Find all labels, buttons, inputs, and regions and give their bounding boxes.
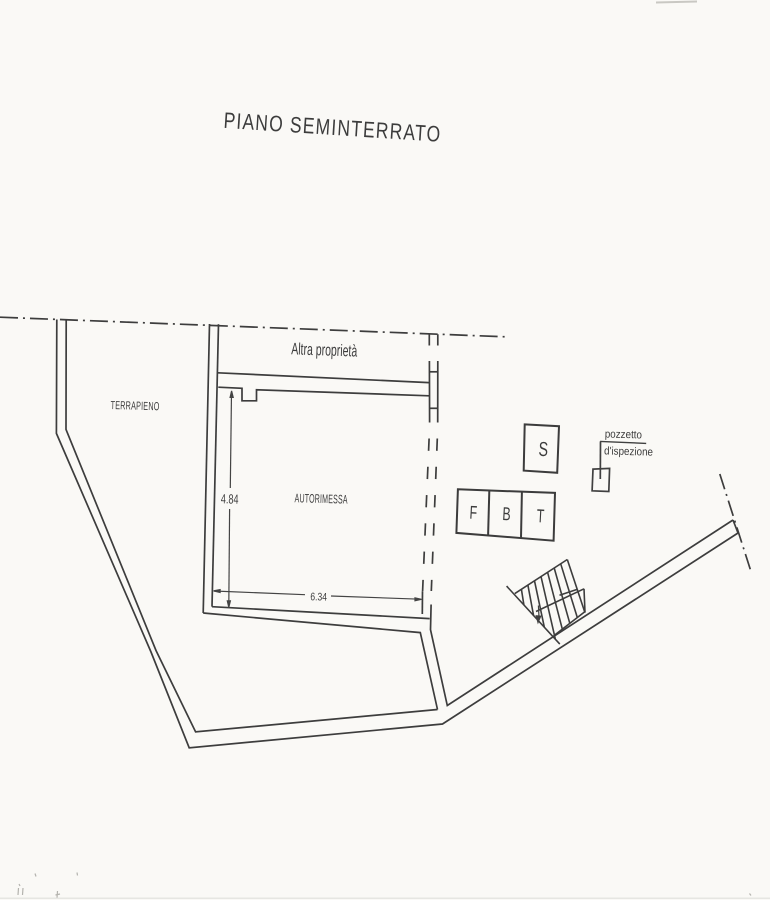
- svg-text:6.34: 6.34: [310, 591, 327, 604]
- svg-text:AUTORIMESSA: AUTORIMESSA: [294, 492, 347, 507]
- svg-text:Altra proprietà: Altra proprietà: [291, 339, 358, 360]
- svg-text:S: S: [538, 437, 549, 461]
- svg-text:4.84: 4.84: [221, 493, 239, 507]
- svg-text:T: T: [536, 507, 545, 527]
- svg-text:TERRAPIENO: TERRAPIENO: [110, 399, 159, 414]
- svg-text:d'ispezione: d'ispezione: [604, 445, 653, 459]
- svg-text:F: F: [469, 503, 478, 523]
- svg-text:B: B: [502, 505, 511, 525]
- svg-text:pozzetto: pozzetto: [605, 428, 643, 442]
